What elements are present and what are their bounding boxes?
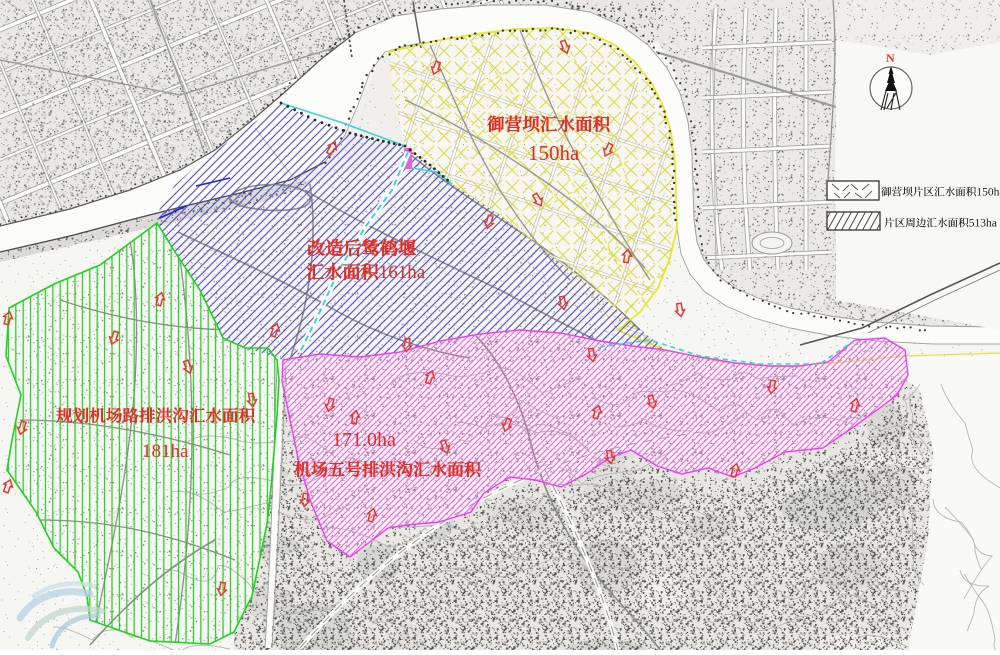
svg-text:513ha: 513ha [969,218,997,230]
svg-text:161ha: 161ha [379,262,426,283]
svg-text:150ha: 150ha [528,141,580,165]
svg-text:N: N [886,51,895,65]
svg-text:171.0ha: 171.0ha [332,429,396,451]
svg-text:181ha: 181ha [142,441,189,462]
svg-text:150ha: 150ha [976,187,1000,199]
